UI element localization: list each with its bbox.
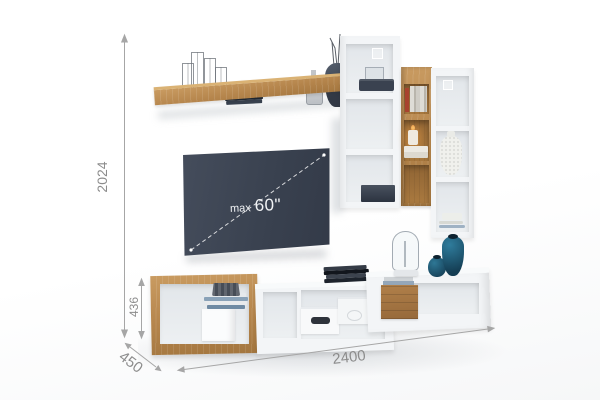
furniture-product-render: max 60"	[0, 0, 600, 400]
dimension-label-stand-height: 436	[119, 295, 149, 319]
dimension-lines	[0, 0, 600, 400]
dimension-label-total-height: 2024	[86, 159, 118, 195]
